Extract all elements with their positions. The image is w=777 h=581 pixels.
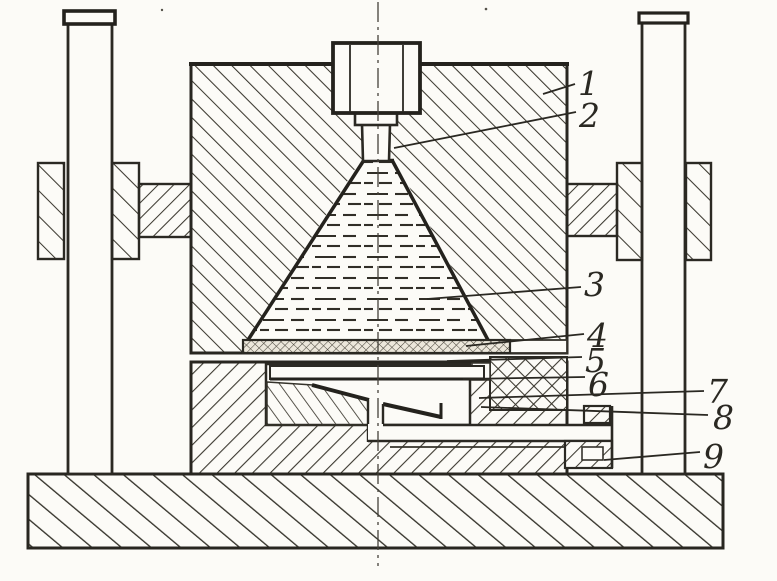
callout-2-label: 2 <box>578 96 600 135</box>
right-insert-block <box>490 357 567 410</box>
left-guide-column <box>64 11 115 474</box>
right-column-shaft <box>642 20 685 474</box>
left-column-shaft <box>68 23 112 474</box>
scan-speck <box>485 8 488 11</box>
right-inner-bushing <box>617 163 642 260</box>
right-column-cap <box>639 13 688 23</box>
callout-6-label: 6 <box>588 365 609 404</box>
figure-canvas: 1 2 3 4 5 6 7 8 9 <box>0 0 777 581</box>
base-plate <box>28 474 723 548</box>
bracket-upper-jaw <box>584 406 610 423</box>
top-plate <box>270 366 484 379</box>
strip-right-band <box>509 340 567 353</box>
ram-head <box>333 43 420 113</box>
scan-speck <box>161 9 163 11</box>
left-inner-bushing <box>112 163 139 259</box>
callout-8-label: 8 <box>713 398 734 437</box>
right-guide-column <box>639 13 688 474</box>
left-outer-bushing <box>38 163 64 259</box>
right-outer-bushing <box>686 163 711 260</box>
bracket-notch <box>582 447 603 460</box>
callout-3-label: 3 <box>584 265 605 304</box>
right-arm <box>567 184 617 236</box>
nozzle-stem <box>362 124 390 161</box>
callout-9-label: 9 <box>703 437 724 476</box>
left-arm <box>139 184 191 237</box>
technical-drawing: 1 2 3 4 5 6 7 8 9 <box>0 0 777 581</box>
left-column-cap <box>64 11 115 24</box>
